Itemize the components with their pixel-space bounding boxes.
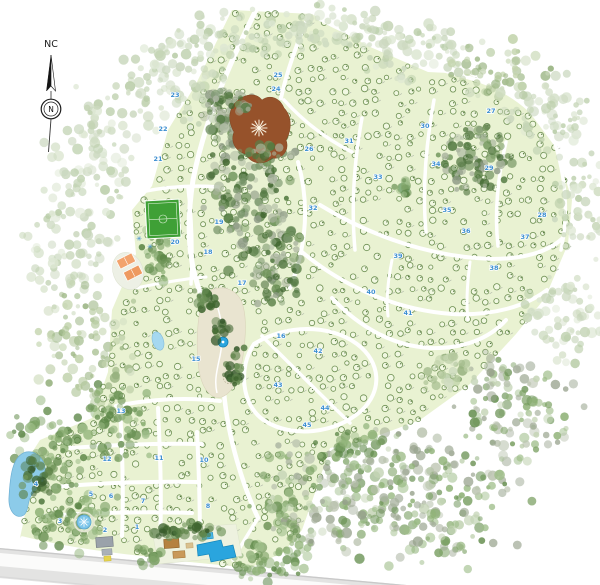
block-label-38: 38 [489, 264, 499, 272]
compass-label: NC [44, 39, 58, 50]
block-label-24: 24 [271, 85, 281, 93]
entrance-building [96, 536, 114, 547]
block-label-2: 2 [103, 526, 108, 534]
block-label-39: 39 [393, 252, 403, 260]
block-label-35: 35 [442, 206, 452, 214]
block-label-18: 18 [203, 248, 213, 256]
park-fountain-jet [222, 341, 225, 344]
block-label-43: 43 [273, 381, 282, 389]
clubhouse-annex [173, 551, 185, 559]
block-label-25: 25 [273, 71, 283, 79]
block-label-8: 8 [206, 502, 211, 510]
block-label-30: 30 [420, 122, 430, 130]
block-label-15: 15 [191, 355, 201, 363]
block-label-1: 1 [135, 523, 140, 531]
block-label-20: 20 [170, 238, 180, 246]
block-label-11: 11 [154, 454, 164, 462]
block-label-3: 3 [58, 517, 63, 525]
compass-tail [49, 119, 52, 152]
master-plan-map: NC N ✳✳123456781011121315161718192021222… [0, 0, 600, 585]
block-label-45: 45 [302, 421, 312, 429]
fountain-icon: ✳ [147, 243, 153, 251]
entrance-kiosk [102, 549, 112, 556]
compass: NC N [41, 39, 61, 152]
fountain-icon: ✳ [136, 235, 142, 243]
block-label-27: 27 [486, 107, 495, 115]
block-label-7: 7 [141, 497, 146, 505]
block-label-16: 16 [276, 332, 286, 340]
pool-deck [186, 543, 193, 548]
block-label-40: 40 [366, 288, 376, 296]
block-label-41: 41 [403, 309, 413, 317]
block-label-29: 29 [484, 164, 494, 172]
block-label-37: 37 [520, 233, 529, 241]
block-label-5: 5 [89, 490, 94, 498]
block-label-12: 12 [102, 455, 111, 463]
block-label-32: 32 [308, 204, 317, 212]
block-label-21: 21 [153, 155, 163, 163]
service-structure [104, 556, 111, 561]
block-label-31: 31 [344, 137, 354, 145]
site-plan-page: NC N ✳✳123456781011121315161718192021222… [0, 0, 600, 585]
block-label-36: 36 [461, 227, 471, 235]
block-label-22: 22 [158, 125, 167, 133]
block-label-34: 34 [431, 160, 441, 168]
block-label-13: 13 [116, 407, 125, 415]
block-label-10: 10 [199, 456, 209, 464]
north-needle-icon [51, 55, 56, 91]
block-label-17: 17 [237, 279, 246, 287]
block-label-33: 33 [373, 173, 382, 181]
north-needle-icon [47, 55, 52, 91]
block-label-6: 6 [109, 492, 114, 500]
block-label-42: 42 [313, 347, 322, 355]
block-label-19: 19 [214, 218, 224, 226]
block-label-26: 26 [304, 145, 314, 153]
block-label-4: 4 [34, 480, 39, 488]
soccer-field [145, 199, 181, 239]
block-label-44: 44 [320, 404, 330, 412]
pond-fountain [80, 518, 89, 527]
block-label-28: 28 [537, 211, 547, 219]
compass-north-letter: N [48, 105, 54, 114]
block-label-23: 23 [170, 91, 179, 99]
